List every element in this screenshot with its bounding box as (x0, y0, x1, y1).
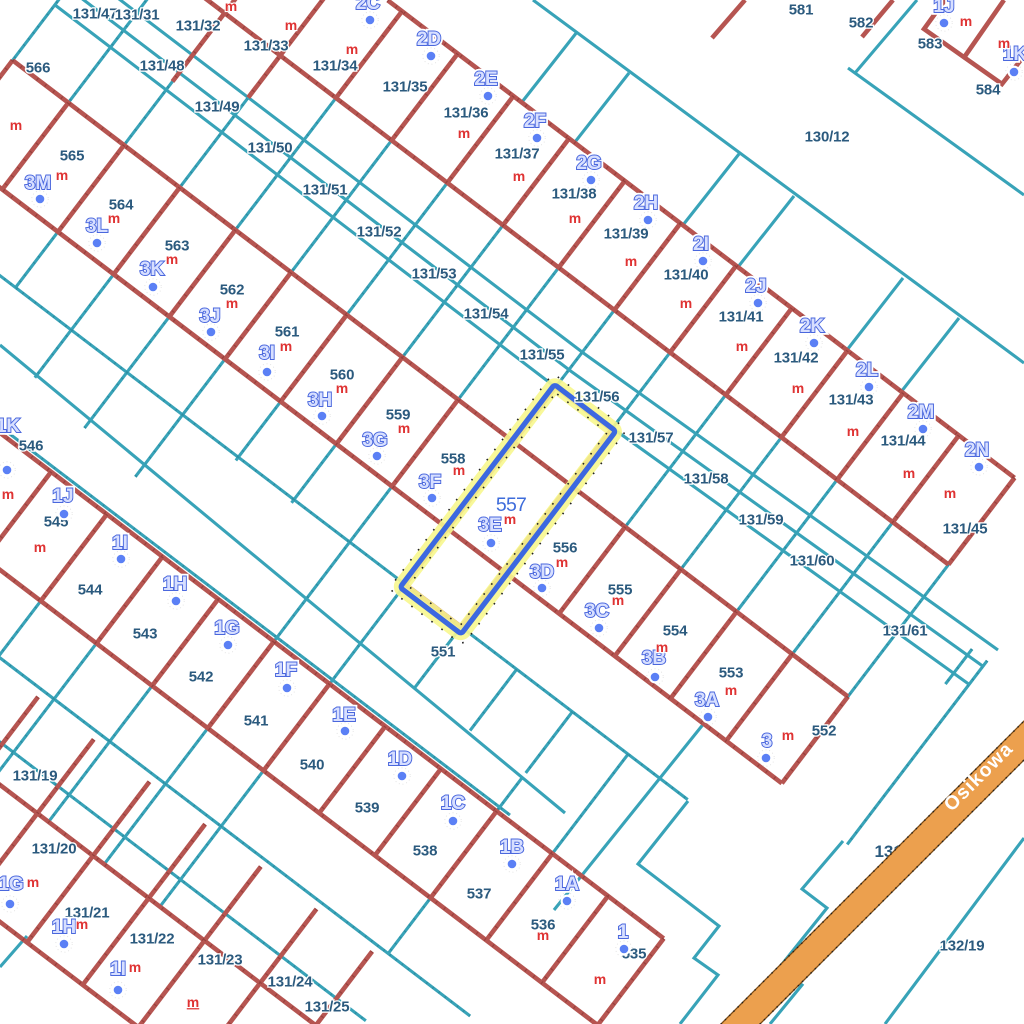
svg-text:3C: 3C (585, 601, 610, 622)
svg-text:2G: 2G (576, 153, 601, 174)
svg-text:131/54: 131/54 (464, 306, 510, 323)
svg-text:131/23: 131/23 (198, 952, 243, 969)
svg-text:m: m (725, 682, 737, 698)
svg-text:m: m (944, 485, 956, 501)
svg-text:131/57: 131/57 (629, 430, 674, 447)
svg-text:3I: 3I (259, 343, 275, 364)
svg-text:m: m (656, 639, 668, 655)
svg-text:3J: 3J (199, 306, 220, 327)
svg-text:3L: 3L (86, 216, 109, 237)
svg-text:3M: 3M (25, 173, 51, 194)
svg-text:2J: 2J (745, 276, 766, 297)
svg-text:131/25: 131/25 (305, 999, 350, 1016)
svg-text:3A: 3A (695, 690, 720, 711)
svg-text:546: 546 (19, 438, 43, 455)
svg-text:540: 540 (300, 757, 324, 774)
svg-text:m: m (56, 167, 68, 183)
svg-text:1F: 1F (275, 660, 297, 681)
svg-text:581: 581 (789, 2, 813, 19)
svg-text:m: m (736, 338, 748, 354)
svg-text:131/55: 131/55 (520, 347, 565, 364)
svg-text:m: m (680, 295, 692, 311)
svg-text:537: 537 (467, 886, 491, 903)
svg-text:1A: 1A (555, 874, 580, 895)
svg-text:131/36: 131/36 (444, 105, 489, 122)
svg-text:131/31: 131/31 (115, 7, 160, 24)
svg-text:2K: 2K (800, 316, 825, 337)
svg-text:m: m (569, 210, 581, 226)
svg-text:131/47: 131/47 (73, 6, 118, 23)
svg-text:1E: 1E (332, 705, 355, 726)
svg-text:m: m (108, 210, 120, 226)
svg-text:131/39: 131/39 (604, 226, 649, 243)
svg-text:m: m (336, 380, 348, 396)
svg-text:131/53: 131/53 (412, 266, 457, 283)
svg-text:m: m (398, 420, 410, 436)
svg-text:m: m (10, 117, 22, 133)
svg-text:542: 542 (189, 669, 213, 686)
svg-text:131/43: 131/43 (829, 392, 874, 409)
svg-text:m: m (612, 592, 624, 608)
svg-text:3: 3 (762, 731, 773, 752)
svg-text:3F: 3F (419, 472, 441, 493)
svg-text:131/52: 131/52 (357, 224, 402, 241)
svg-text:m: m (537, 927, 549, 943)
svg-text:m: m (27, 874, 39, 890)
svg-text:m: m (285, 17, 297, 33)
svg-text:131/59: 131/59 (739, 512, 784, 529)
svg-text:565: 565 (60, 148, 84, 165)
svg-text:582: 582 (849, 15, 873, 32)
svg-text:m: m (187, 994, 199, 1010)
svg-text:m: m (998, 35, 1010, 51)
svg-text:m: m (453, 462, 465, 478)
svg-text:m: m (556, 554, 568, 570)
svg-text:131/45: 131/45 (943, 521, 988, 538)
svg-text:1G: 1G (214, 618, 239, 639)
svg-text:1K: 1K (0, 416, 20, 437)
svg-text:2N: 2N (965, 440, 989, 461)
svg-text:131/61: 131/61 (883, 623, 928, 640)
svg-text:583: 583 (918, 36, 942, 53)
svg-text:131/38: 131/38 (552, 186, 597, 203)
svg-text:m: m (847, 423, 859, 439)
svg-text:541: 541 (244, 713, 268, 730)
svg-text:2F: 2F (524, 111, 546, 132)
svg-text:m: m (594, 971, 606, 987)
svg-text:m: m (782, 727, 794, 743)
svg-text:131/60: 131/60 (790, 553, 835, 570)
svg-text:m: m (458, 125, 470, 141)
svg-text:m: m (792, 380, 804, 396)
svg-text:1D: 1D (388, 749, 412, 770)
svg-text:131/49: 131/49 (195, 99, 240, 116)
svg-text:2M: 2M (908, 402, 934, 423)
svg-text:566: 566 (26, 60, 50, 77)
svg-text:554: 554 (663, 623, 688, 640)
svg-text:132/19: 132/19 (940, 938, 985, 955)
svg-text:131/44: 131/44 (881, 433, 927, 450)
svg-text:584: 584 (976, 82, 1001, 99)
svg-text:1I: 1I (112, 533, 128, 554)
svg-text:m: m (225, 0, 237, 14)
svg-text:131/42: 131/42 (774, 350, 819, 367)
svg-text:2D: 2D (417, 29, 441, 50)
svg-text:m: m (504, 511, 516, 527)
svg-text:m: m (903, 465, 915, 481)
svg-text:2L: 2L (856, 360, 879, 381)
svg-text:131/37: 131/37 (495, 146, 540, 163)
svg-text:2I: 2I (693, 234, 709, 255)
svg-text:131/19: 131/19 (13, 768, 58, 785)
svg-text:m: m (129, 959, 141, 975)
svg-text:1H: 1H (52, 917, 76, 938)
svg-text:1G: 1G (0, 874, 24, 895)
svg-text:539: 539 (355, 800, 379, 817)
svg-text:3H: 3H (308, 390, 332, 411)
svg-text:131/20: 131/20 (32, 841, 77, 858)
svg-text:131/51: 131/51 (303, 182, 348, 199)
svg-text:131/24: 131/24 (268, 974, 314, 991)
svg-text:1C: 1C (441, 793, 466, 814)
svg-text:2E: 2E (474, 69, 497, 90)
svg-text:130/12: 130/12 (805, 129, 850, 146)
svg-text:543: 543 (133, 626, 157, 643)
svg-text:131/48: 131/48 (140, 58, 185, 75)
svg-text:1H: 1H (163, 574, 187, 595)
svg-text:m: m (625, 253, 637, 269)
svg-text:m: m (346, 41, 358, 57)
svg-text:3G: 3G (362, 430, 387, 451)
svg-text:3K: 3K (140, 259, 165, 280)
svg-text:131/34: 131/34 (313, 58, 359, 75)
svg-text:1J: 1J (52, 486, 73, 507)
svg-text:m: m (34, 539, 46, 555)
svg-text:m: m (166, 251, 178, 267)
svg-text:131/33: 131/33 (244, 38, 289, 55)
svg-text:m: m (280, 338, 292, 354)
svg-text:538: 538 (413, 843, 437, 860)
svg-text:553: 553 (719, 665, 743, 682)
svg-text:2H: 2H (634, 193, 658, 214)
svg-text:131/32: 131/32 (176, 18, 221, 35)
svg-text:m: m (2, 486, 14, 502)
svg-text:131/40: 131/40 (664, 267, 709, 284)
svg-text:552: 552 (812, 723, 836, 740)
svg-text:131/22: 131/22 (130, 931, 175, 948)
svg-text:131/41: 131/41 (719, 309, 764, 326)
svg-text:1I: 1I (110, 959, 126, 980)
svg-text:544: 544 (78, 582, 103, 599)
svg-text:m: m (513, 168, 525, 184)
svg-text:1: 1 (618, 922, 629, 943)
svg-text:3E: 3E (478, 515, 501, 536)
svg-text:m: m (76, 916, 88, 932)
svg-text:m: m (226, 295, 238, 311)
svg-text:131/35: 131/35 (383, 79, 428, 96)
svg-text:551: 551 (431, 644, 455, 661)
svg-text:m: m (960, 13, 972, 29)
svg-text:131/50: 131/50 (248, 140, 293, 157)
svg-text:1B: 1B (500, 837, 524, 858)
svg-text:131/56: 131/56 (575, 389, 620, 406)
svg-text:2C: 2C (356, 0, 381, 14)
svg-text:131/58: 131/58 (684, 471, 729, 488)
